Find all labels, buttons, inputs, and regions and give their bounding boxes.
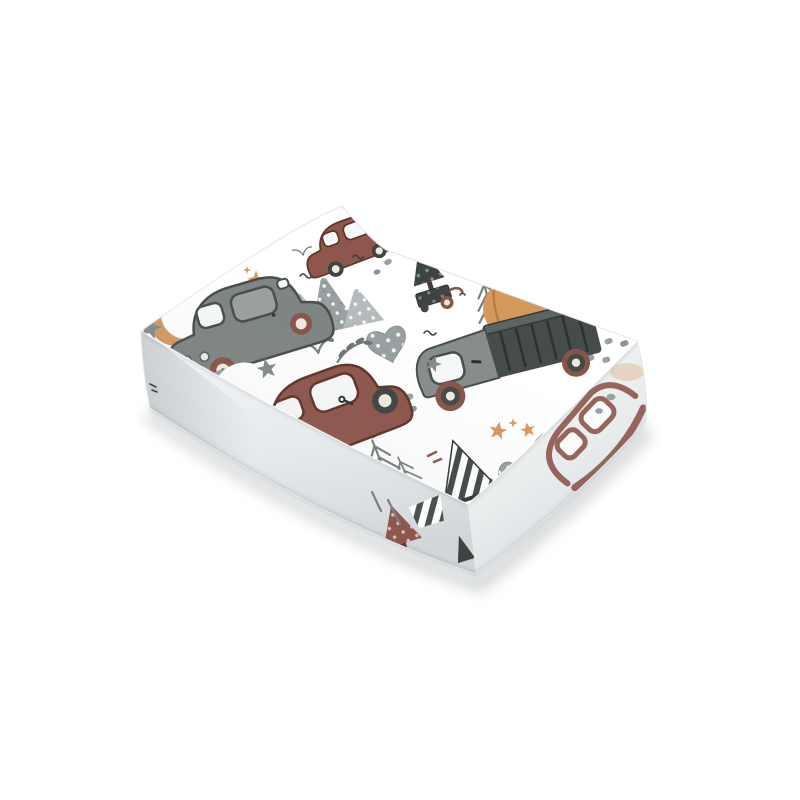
blurred-print-fragment [610, 363, 644, 381]
product-photo [0, 0, 800, 800]
product-photo-stage [0, 0, 800, 800]
